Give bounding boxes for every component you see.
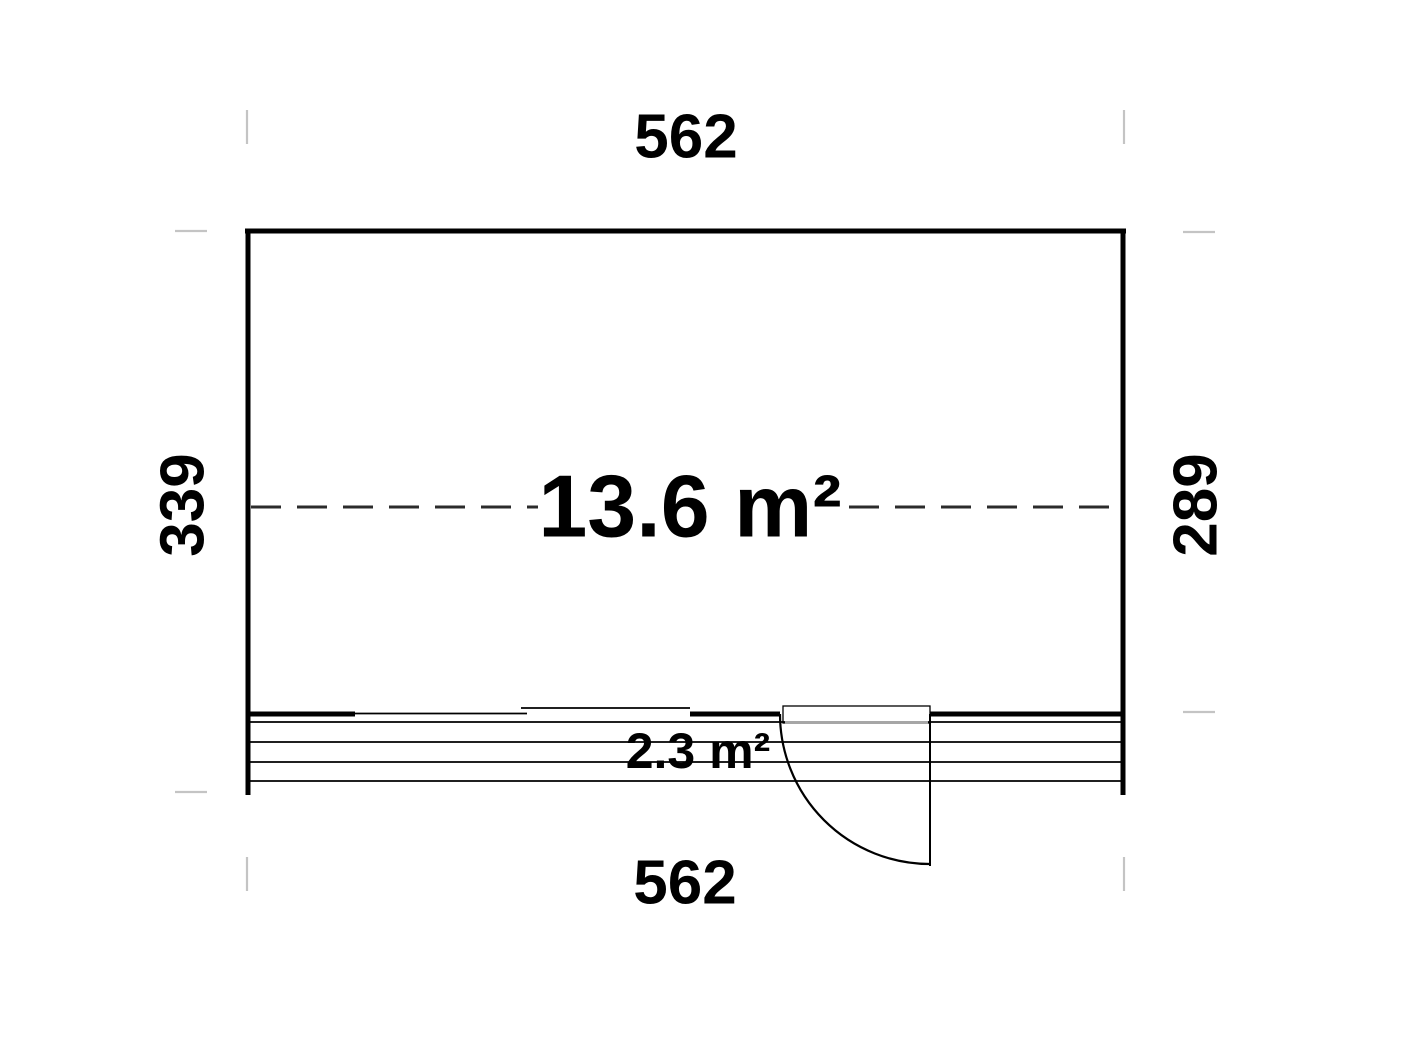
door-frame — [783, 706, 930, 723]
door-swing-arc — [780, 714, 930, 864]
floorplan-canvas: 562 562 339 289 13.6 m² 2.3 m² — [0, 0, 1408, 1056]
dimension-label-left: 339 — [149, 453, 218, 556]
main-area-label: 13.6 m² — [538, 457, 841, 556]
dimension-label-top: 562 — [634, 103, 737, 172]
terrace-area-label: 2.3 m² — [626, 723, 771, 779]
dimension-label-bottom: 562 — [633, 849, 736, 918]
floorplan-drawing: 562 562 339 289 13.6 m² 2.3 m² — [0, 0, 1408, 1056]
dimension-label-right: 289 — [1162, 453, 1231, 556]
